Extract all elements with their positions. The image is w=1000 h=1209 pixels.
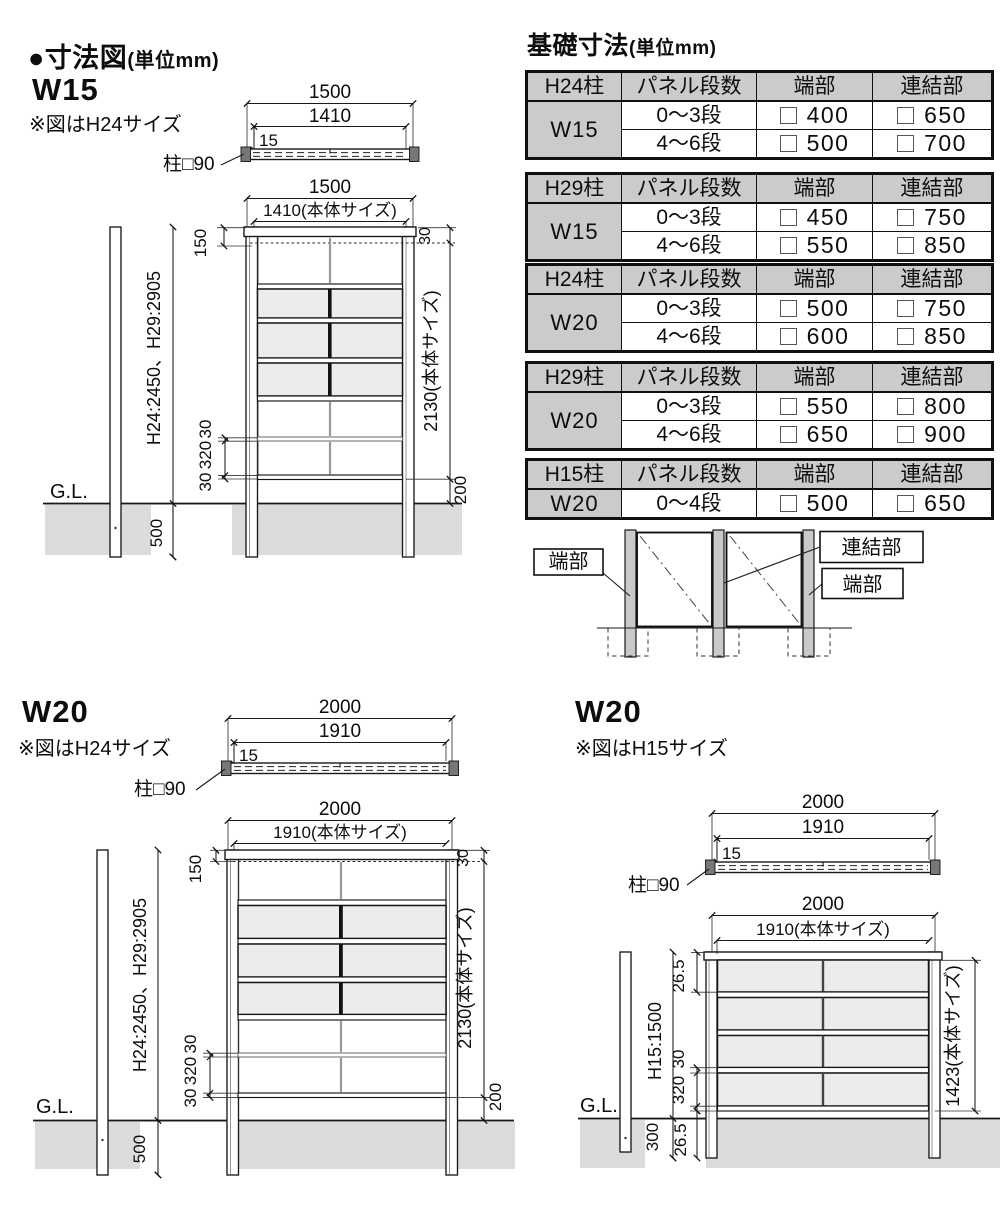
size-cell: W15 <box>527 203 622 261</box>
end-header: 端部 <box>757 460 873 490</box>
w20a-left-post <box>227 850 239 1175</box>
w20b-top-view: 2000 1910 15 柱□90 <box>628 792 940 896</box>
joint-value-cell: 750 <box>873 203 993 232</box>
w15-top-frame-rail <box>244 227 416 237</box>
joint-value-cell: 650 <box>873 489 993 519</box>
end-label-right: 端部 <box>843 573 883 596</box>
foundation-table-h29-w20: H29柱 パネル段数 端部 連結部 W20 0〜3段 550 800 4〜6段 … <box>525 361 994 451</box>
w20b-top-dim-overall: 2000 <box>802 792 844 813</box>
w20a-front-dim-overall: 2000 <box>319 799 361 820</box>
joint-value-cell: 650 <box>873 101 993 130</box>
w15-dim-200: 200 <box>451 476 470 504</box>
square-symbol <box>780 495 797 512</box>
post-header: H24柱 <box>527 72 622 102</box>
end-value-cell: 550 <box>757 392 873 421</box>
end-value-cell: 500 <box>757 489 873 519</box>
w15-free-post <box>110 227 121 557</box>
foundation-table-h24-w15: H24柱 パネル段数 端部 連結部 W15 0〜3段 400 650 4〜6段 … <box>525 70 994 160</box>
w20a-panel-rows <box>238 862 446 1098</box>
post-header: H29柱 <box>527 174 622 204</box>
w20b-dim-body-h: 1423(本体サイズ) <box>943 965 963 1107</box>
end-header: 端部 <box>757 174 873 204</box>
w15-front-dim-body-w: 1410(本体サイズ) <box>263 201 397 220</box>
page-title-text: ●寸法図 <box>28 43 127 73</box>
w20a-top-view: 2000 1910 15 柱□90 <box>134 697 459 800</box>
square-symbol <box>897 209 914 226</box>
end-value-cell: 550 <box>757 232 873 261</box>
steps-cell: 0〜3段 <box>622 294 757 323</box>
page-canvas: ●寸法図(単位mm) W15 ※図はH24サイズ 基礎寸法(単位mm) W20 … <box>0 0 1000 1209</box>
square-symbol <box>780 135 797 152</box>
square-symbol <box>780 209 797 226</box>
joint-value-cell: 750 <box>873 294 993 323</box>
square-symbol <box>897 237 914 254</box>
square-symbol <box>780 237 797 254</box>
w15-dim-150: 150 <box>191 229 210 257</box>
w20a-top-dim-body: 1910 <box>319 721 361 742</box>
end-post-right <box>803 530 814 657</box>
w20b-top-dim-offset: 15 <box>722 844 741 863</box>
w20b-dim-265top: 26.5 <box>669 959 688 992</box>
joint-value-cell: 850 <box>873 232 993 261</box>
w20b-top-dim-body: 1910 <box>802 817 844 838</box>
w20b-top-post-cap-right <box>931 860 941 875</box>
w20a-dim-200: 200 <box>486 1083 505 1111</box>
square-symbol <box>897 398 914 415</box>
w15-top-dim-overall: 1500 <box>309 82 351 103</box>
w20b-dim-30: 30 <box>669 1050 688 1069</box>
steps-cell: 4〜6段 <box>622 421 757 450</box>
joint-header: 連結部 <box>873 174 993 204</box>
joint-header: 連結部 <box>873 363 993 393</box>
w20b-dim-320: 320 <box>669 1076 688 1104</box>
w15-top-view: 1500 1410 15 柱□90 <box>163 82 419 175</box>
w15-front-dim-overall: 1500 <box>309 177 351 198</box>
w15-drawing: 1500 1410 15 柱□90 <box>30 78 500 580</box>
w20a-free-post <box>97 850 108 1175</box>
post-header: H29柱 <box>527 363 622 393</box>
steps-cell: 0〜3段 <box>622 203 757 232</box>
end-value-cell: 600 <box>757 323 873 352</box>
w20a-dim-30top: 30 <box>455 849 472 867</box>
end-value-cell: 400 <box>757 101 873 130</box>
w20a-top-post-cap-left <box>222 761 232 776</box>
w20b-left-post <box>706 952 717 1158</box>
w20b-dim-post-height: H15:1500 <box>645 1002 665 1080</box>
steps-cell: 0〜3段 <box>622 101 757 130</box>
size-cell: W20 <box>527 294 622 352</box>
end-value-cell: 450 <box>757 203 873 232</box>
panel-steps-header: パネル段数 <box>622 72 757 102</box>
w20a-dim-post-height: H24:2450、H29:2905 <box>130 898 150 1072</box>
w20a-dim-500: 500 <box>130 1135 149 1163</box>
joint-value-cell: 800 <box>873 392 993 421</box>
foundation-table-h15-w20: H15柱 パネル段数 端部 連結部 W20 0〜4段 500 650 <box>525 458 994 520</box>
w20b-dim-265bot: 26.5 <box>671 1123 690 1156</box>
square-symbol <box>780 426 797 443</box>
panel-steps-header: パネル段数 <box>622 363 757 393</box>
w20b-top-post-cap-left <box>706 860 716 875</box>
w20a-front-view: 2000 1910(本体サイズ) 150 H24:2450、H29:2905 3… <box>33 799 515 1175</box>
w20b-top-frame-rail <box>704 952 942 960</box>
w20a-dim-30b: 30 <box>181 1089 200 1108</box>
square-symbol <box>897 107 914 124</box>
w20-h15-drawing: 2000 1910 15 柱□90 <box>576 692 1000 1184</box>
w15-dim-30top: 30 <box>417 227 434 245</box>
w15-panel-rows <box>258 238 403 480</box>
w20a-dim-150: 150 <box>186 855 205 883</box>
w15-top-post-cap-right <box>410 147 420 162</box>
square-symbol <box>897 328 914 345</box>
square-symbol <box>897 495 914 512</box>
foundation-title-unit: (単位mm) <box>629 38 716 59</box>
w15-top-dim-offset: 15 <box>259 131 278 150</box>
connection-diagram: 端部 連結部 端部 <box>528 526 998 666</box>
joint-post <box>713 530 724 657</box>
w15-post-size-label: 柱□90 <box>163 153 215 175</box>
w15-dim-30a: 30 <box>196 420 215 439</box>
w15-left-post <box>246 227 258 557</box>
w15-dim-320: 320 <box>196 441 215 469</box>
end-value-cell: 500 <box>757 130 873 159</box>
steps-cell: 4〜6段 <box>622 130 757 159</box>
joint-label: 連結部 <box>842 536 902 559</box>
w15-dim-post-height: H24:2450、H29:2905 <box>144 271 164 445</box>
steps-cell: 4〜6段 <box>622 323 757 352</box>
w15-dim-30b: 30 <box>196 473 215 492</box>
w20a-dim-30a: 30 <box>181 1035 200 1054</box>
post-header: H15柱 <box>527 460 622 490</box>
joint-value-cell: 700 <box>873 130 993 159</box>
w20b-free-post <box>620 952 631 1152</box>
w15-top-dim-body: 1410 <box>309 106 351 127</box>
w20a-dim-body-h: 2130(本体サイズ) <box>455 907 475 1049</box>
foundation-table-h29-w15: H29柱 パネル段数 端部 連結部 W15 0〜3段 450 750 4〜6段 … <box>525 172 994 262</box>
joint-header: 連結部 <box>873 460 993 490</box>
w20a-dim-320: 320 <box>181 1057 200 1085</box>
w20b-front-view: 2000 1910(本体サイズ) 26.5 H15:1500 30 320 26… <box>578 894 1000 1168</box>
post-header: H24柱 <box>527 265 622 295</box>
square-symbol <box>780 328 797 345</box>
square-symbol <box>780 300 797 317</box>
steps-cell: 0〜3段 <box>622 392 757 421</box>
square-symbol <box>897 426 914 443</box>
w20b-gl-label: G.L. <box>580 1095 618 1117</box>
w20b-dim-300: 300 <box>643 1123 662 1151</box>
end-value-cell: 650 <box>757 421 873 450</box>
joint-value-cell: 900 <box>873 421 993 450</box>
square-symbol <box>780 398 797 415</box>
size-cell: W20 <box>527 392 622 450</box>
w15-front-view: 1500 1410(本体サイズ) 150 H24:2450、H29:2905 3… <box>43 177 470 557</box>
joint-value-cell: 850 <box>873 323 993 352</box>
panel-steps-header: パネル段数 <box>622 265 757 295</box>
w20a-top-frame-rail <box>225 850 459 860</box>
w20a-top-dim-offset: 15 <box>239 746 258 765</box>
w15-dim-500: 500 <box>147 519 166 547</box>
steps-cell: 4〜6段 <box>622 232 757 261</box>
w20-h24-drawing: 2000 1910 15 柱□90 <box>30 692 518 1184</box>
w15-right-post <box>403 227 415 557</box>
square-symbol <box>780 107 797 124</box>
w20b-panel-rows <box>718 960 929 1111</box>
panel-steps-header: パネル段数 <box>622 174 757 204</box>
end-label-left: 端部 <box>549 550 589 573</box>
page-title: ●寸法図(単位mm) <box>28 36 219 75</box>
w15-dim-body-h: 2130(本体サイズ) <box>421 290 441 432</box>
w20a-gl-label: G.L. <box>36 1096 74 1118</box>
w15-gl-label: G.L. <box>50 481 88 503</box>
end-value-cell: 500 <box>757 294 873 323</box>
foundation-table-h24-w20: H24柱 パネル段数 端部 連結部 W20 0〜3段 500 750 4〜6段 … <box>525 263 994 353</box>
square-symbol <box>897 135 914 152</box>
w20b-right-post <box>929 952 940 1158</box>
foundation-title-text: 基礎寸法 <box>527 32 629 60</box>
w20b-front-dim-body-w: 1910(本体サイズ) <box>756 920 890 939</box>
w20b-post-size-label: 柱□90 <box>628 874 680 896</box>
page-title-unit: (単位mm) <box>127 50 219 72</box>
w20b-front-dim-overall: 2000 <box>802 894 844 915</box>
w20a-post-size-label: 柱□90 <box>134 778 186 800</box>
joint-header: 連結部 <box>873 265 993 295</box>
w20a-top-post-cap-right <box>449 761 459 776</box>
joint-header: 連結部 <box>873 72 993 102</box>
end-header: 端部 <box>757 72 873 102</box>
steps-cell: 0〜4段 <box>622 489 757 519</box>
panel-steps-header: パネル段数 <box>622 460 757 490</box>
w20a-front-dim-body-w: 1910(本体サイズ) <box>273 823 407 842</box>
foundation-title: 基礎寸法(単位mm) <box>527 26 716 62</box>
end-header: 端部 <box>757 363 873 393</box>
size-cell: W20 <box>527 489 622 519</box>
size-cell: W15 <box>527 101 622 159</box>
w20a-top-dim-overall: 2000 <box>319 697 361 718</box>
square-symbol <box>897 300 914 317</box>
end-header: 端部 <box>757 265 873 295</box>
